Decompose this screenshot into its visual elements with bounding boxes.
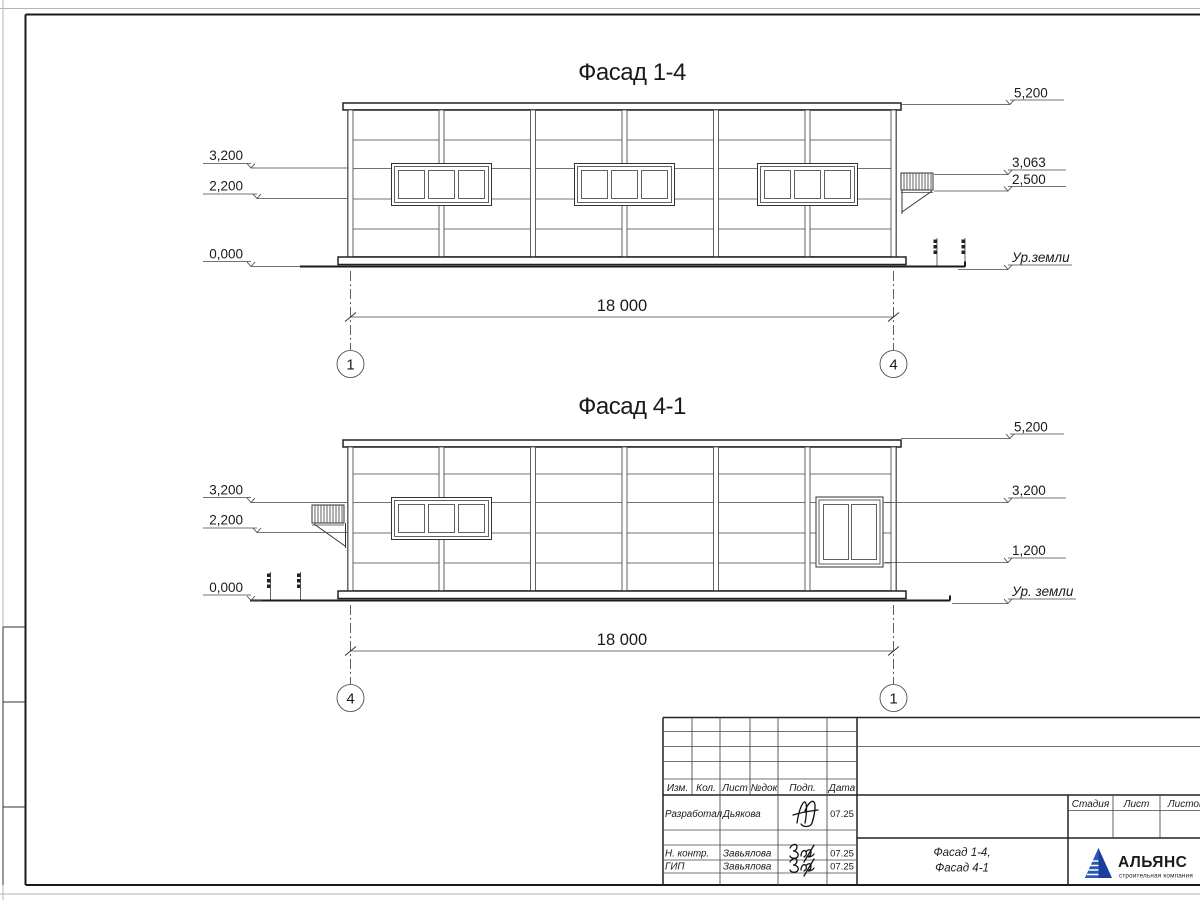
axis-label-left: 1 [346,357,354,374]
window-3pane-2 [575,164,675,206]
col-list: Лист [721,783,748,794]
facade-1-4-dimension: 18 000 1 4 [337,271,907,378]
elevation-mark: 2,500 [1012,172,1046,187]
staff-row-developer: Разработал Дьякова 07.25 [665,801,854,826]
doc-title-cell: Фасад 1-4, Фасад 4-1 [933,847,990,875]
canopy-left [312,505,346,548]
window-3pane [392,498,492,540]
facade-1-4-building [300,103,965,268]
facade-4-1-dimension: 18 000 4 1 [337,605,907,712]
plinth [338,257,906,265]
facade-1-4-marks-left: 3,200 2,200 0,000 [203,148,348,267]
elevation-mark: 2,200 [209,513,243,528]
logo-company-subtitle: строительная компания [1119,873,1193,880]
facade-4-1-marks-left: 3,200 2,200 0,000 [203,483,348,601]
left-margin-cells [3,627,26,885]
logo-company-name: АЛЬЯНС [1118,854,1187,871]
signature-icon [793,801,818,826]
facade-4-1-building [250,440,950,602]
col-kol: Кол. [696,783,716,794]
col-podp: Подп. [789,783,816,794]
roof-cap [343,103,901,110]
role: Разработал [665,809,723,820]
axis-label-right: 4 [889,357,897,374]
window-3pane-3 [758,164,858,206]
canopy-right [901,173,933,214]
doc-title-line2: Фасад 4-1 [935,863,989,875]
person-name: Завьялова [723,862,772,873]
span-dimension-label: 18 000 [597,297,647,315]
facade-4-1-title: Фасад 4-1 [578,393,686,420]
date: 07.25 [830,849,854,860]
facade-4-1-marks-right: 5,200 3,200 1,200 Ур. земли [885,420,1076,604]
elevation-mark: 2,200 [209,179,243,194]
person-name: Дьякова [722,809,761,820]
company-logo: АЛЬЯНС строительная компания [1085,848,1193,880]
date: 07.25 [830,809,854,820]
elevation-mark: 0,000 [209,247,243,262]
facade-4-1: Фасад 4-1 [203,393,1076,712]
elevation-mark: 3,063 [1012,155,1046,170]
signature-icon [790,844,814,862]
downpipe-markers [267,572,301,602]
date: 07.25 [830,862,854,873]
col-izm: Изм. [667,783,688,794]
window-2pane-large [816,497,883,567]
col-data: Дата [828,783,856,794]
axis-label-left: 4 [346,691,354,708]
stage-sheet-cells: Стадия Лист Листов [1072,799,1200,810]
elevation-mark: 5,200 [1014,420,1048,435]
drawing-sheet: Фасад 1-4 [0,0,1200,900]
sheets-label: Листов [1167,799,1200,810]
elevation-mark: 1,200 [1012,543,1046,558]
sheet-label: Лист [1123,799,1150,810]
stage-label: Стадия [1072,799,1110,810]
downpipe-markers [934,238,966,268]
role: Н. контр. [665,849,709,860]
elevation-mark: 0,000 [209,580,243,595]
span-dimension-label: 18 000 [597,631,647,649]
col-ndok: №док [751,783,779,794]
ground-level-label: Ур. земли [1011,584,1074,599]
title-block: Изм. Кол. Лист №док Подп. Дата Разработа… [663,718,1200,886]
staff-row-ncontrol: Н. контр. Завьялова 07.25 [665,844,854,862]
elevation-mark: 3,200 [1012,483,1046,498]
window-3pane-1 [392,164,492,206]
ground-level-label: Ур.земли [1011,250,1070,265]
facade-1-4: Фасад 1-4 [203,59,1072,378]
plinth [338,591,906,599]
roof-cap [343,440,901,447]
role: ГИП [665,862,685,873]
elevation-mark: 3,200 [209,483,243,498]
elevation-mark: 5,200 [1014,86,1048,101]
doc-title-line1: Фасад 1-4, [933,847,990,859]
axis-label-right: 1 [889,691,897,708]
facade-1-4-title: Фасад 1-4 [578,59,686,86]
facade-drawing-svg: Фасад 1-4 [0,0,1200,900]
person-name: Завьялова [723,849,772,860]
elevation-mark: 3,200 [209,148,243,163]
